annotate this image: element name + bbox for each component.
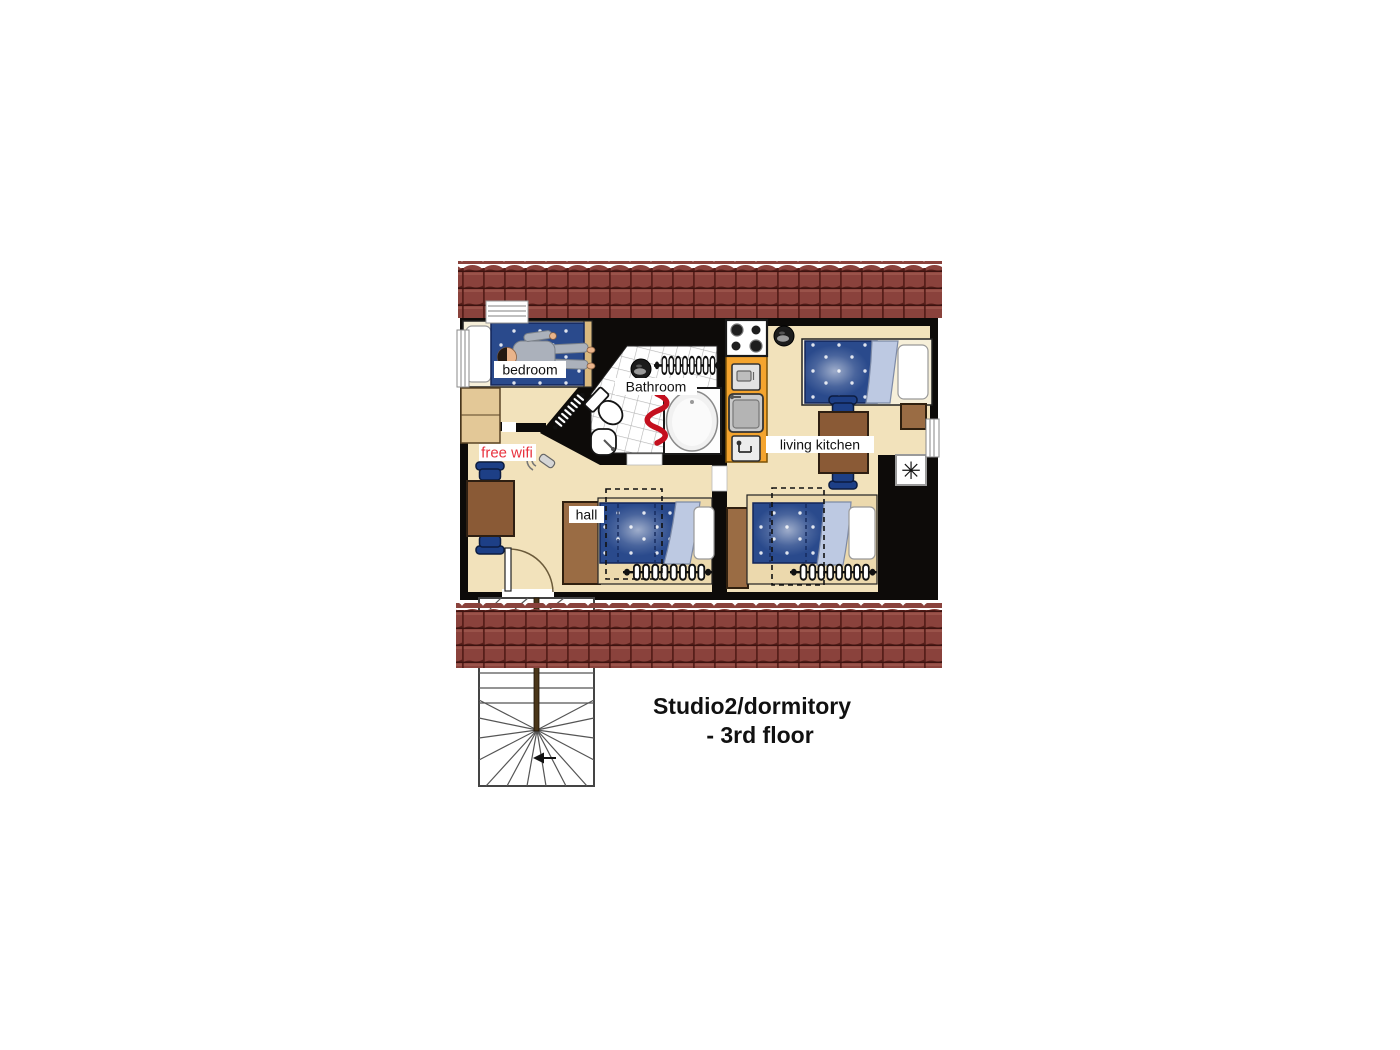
plan-title-line2: - 3rd floor <box>706 722 813 748</box>
nightstand <box>901 404 926 429</box>
ceiling-light-icon <box>631 359 651 379</box>
bedroom-door-opening <box>502 422 516 432</box>
pillow <box>694 507 714 559</box>
left-wall-window <box>457 330 469 387</box>
hall-label: hall <box>576 507 598 523</box>
door-leaf <box>505 548 511 591</box>
plan-title: Studio2/dormitory - 3rd floor <box>653 693 851 748</box>
bedroom-label: bedroom <box>502 362 557 378</box>
fridge-icon: ✳ <box>901 458 921 485</box>
floor-plan-drawing: ✳ <box>0 0 1400 1050</box>
bathroom-sink <box>591 429 616 455</box>
tap-cabinet <box>732 436 760 461</box>
bathroom-door-opening <box>627 454 662 465</box>
kitchen-sink <box>729 394 763 432</box>
bed-radiator <box>623 565 712 580</box>
bed-radiator <box>790 565 876 580</box>
bedroom-skylight <box>486 301 528 323</box>
pillow <box>849 507 875 559</box>
kitchen-counter <box>726 320 767 462</box>
floor-plan-page: ✳ <box>0 0 1400 1050</box>
pillow <box>466 326 491 382</box>
fridge: ✳ <box>896 455 926 485</box>
bathroom-radiator <box>654 357 721 374</box>
microwave <box>732 364 760 390</box>
living-kitchen-label: living kitchen <box>780 437 860 453</box>
roof-top <box>458 261 942 318</box>
stove <box>726 320 767 356</box>
wardrobe <box>727 508 748 588</box>
livingkitchen-door-opening <box>712 466 727 491</box>
free-wifi-label: free wifi <box>481 445 533 462</box>
pillow <box>898 345 928 399</box>
livingkitchen-single-bed <box>727 488 877 588</box>
bathtub <box>664 388 721 454</box>
roof-bottom <box>456 603 942 668</box>
hall-single-bed <box>563 489 714 584</box>
bedroom-hall-wall-stub <box>516 423 546 432</box>
bathroom-label: Bathroom <box>626 379 687 395</box>
plan-title-line1: Studio2/dormitory <box>653 693 851 719</box>
livingkitchen-bed <box>801 339 932 405</box>
ceiling-light-icon <box>774 326 794 346</box>
right-wall-window <box>926 419 939 457</box>
